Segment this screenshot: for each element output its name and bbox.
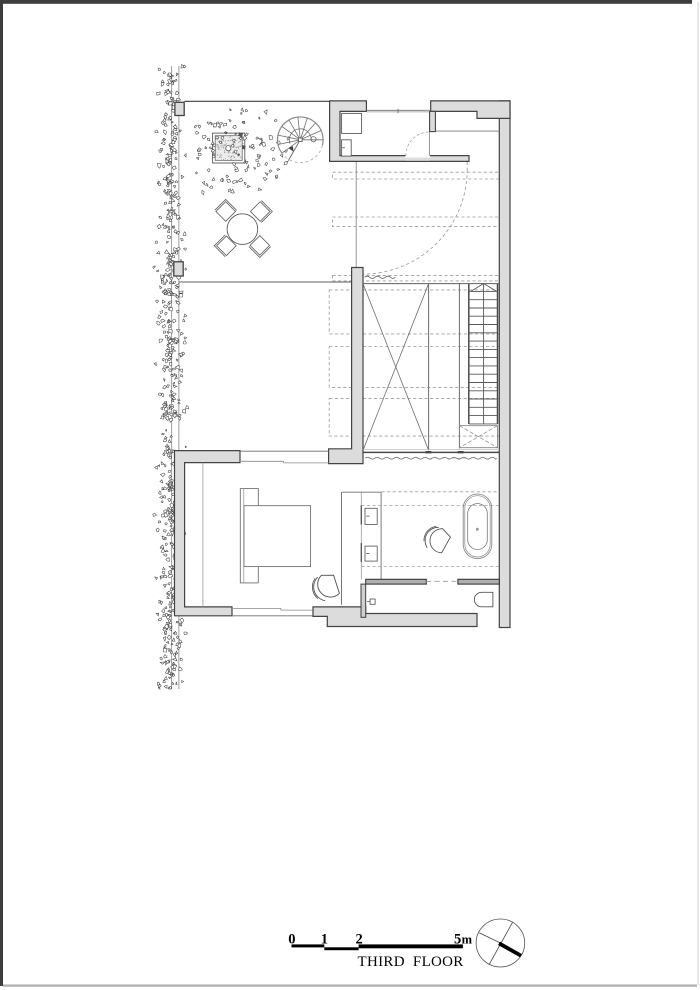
svg-text:m: m xyxy=(462,933,473,947)
svg-text:THIRD FLOOR: THIRD FLOOR xyxy=(358,954,464,970)
